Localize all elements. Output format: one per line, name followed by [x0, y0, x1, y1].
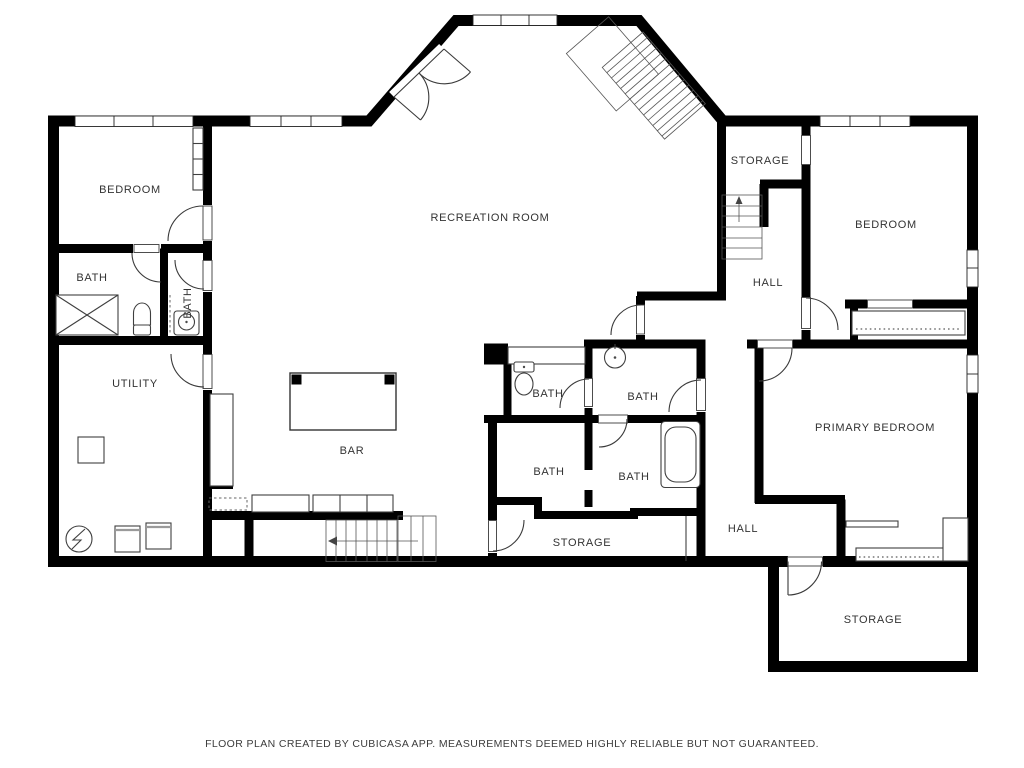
room-label-bedroom-tr: BEDROOM	[855, 219, 917, 231]
room-label-storage-top: STORAGE	[731, 155, 790, 167]
cabinets	[252, 495, 393, 512]
toilet	[134, 303, 151, 335]
closet	[943, 518, 968, 561]
room-label-hall-upper: HALL	[753, 277, 783, 289]
floor-plan-page: BEDROOM BATH BATH UTILITY RECREATION ROO…	[0, 0, 1024, 768]
room-label-bath-left2: BATH	[182, 287, 194, 318]
dashed-cabinet	[209, 498, 247, 510]
electrical-panel-icon	[66, 526, 92, 552]
window	[250, 116, 342, 127]
left-arrow-icon	[328, 537, 337, 546]
room-label-bath-c-tl: BATH	[532, 388, 563, 400]
door	[168, 206, 212, 241]
window	[967, 250, 978, 287]
wardrobe	[852, 311, 965, 335]
window	[967, 355, 978, 393]
room-label-recreation: RECREATION ROOM	[430, 212, 549, 224]
shelf	[846, 521, 898, 527]
door	[171, 354, 212, 389]
room-label-storage-center: STORAGE	[553, 537, 612, 549]
room-label-bath-left1: BATH	[76, 272, 107, 284]
room-label-bath-c-br: BATH	[618, 471, 649, 483]
room-label-primary-bedroom: PRIMARY BEDROOM	[815, 422, 935, 434]
water-heater	[78, 437, 104, 463]
cased-opening	[802, 136, 811, 165]
stair-cabinet	[398, 516, 436, 562]
door	[175, 260, 212, 291]
toilet	[514, 362, 534, 395]
door	[788, 557, 823, 595]
door	[489, 520, 525, 552]
door	[560, 379, 593, 409]
shelf	[193, 128, 203, 190]
door	[599, 415, 628, 447]
dryer	[146, 523, 171, 549]
washer	[115, 526, 140, 552]
door	[611, 305, 645, 335]
window	[473, 15, 557, 26]
door	[132, 245, 161, 283]
bar-table	[290, 373, 396, 430]
bathtub	[661, 422, 700, 488]
window	[75, 116, 193, 127]
bar-counter	[210, 394, 233, 486]
room-label-bath-c-bl: BATH	[533, 466, 564, 478]
door	[802, 298, 839, 331]
shower	[56, 295, 118, 335]
room-label-storage-br: STORAGE	[844, 614, 903, 626]
fireplace-chase	[484, 344, 508, 365]
up-arrow-icon	[736, 196, 743, 204]
door	[669, 379, 706, 413]
floor-plan-drawing: BEDROOM BATH BATH UTILITY RECREATION ROO…	[0, 0, 1024, 768]
wardrobe	[856, 548, 944, 561]
french-doors	[394, 49, 471, 120]
room-label-bedroom-tl: BEDROOM	[99, 184, 161, 196]
stairs-upper	[722, 195, 762, 259]
stairs-lower	[326, 516, 436, 562]
room-label-hall-lower: HALL	[728, 523, 758, 535]
window	[820, 116, 910, 127]
room-label-bar: BAR	[340, 445, 365, 457]
room-label-bath-c-tr: BATH	[627, 391, 658, 403]
cased-opening	[868, 300, 913, 308]
room-label-utility: UTILITY	[112, 378, 158, 390]
footer-disclaimer: FLOOR PLAN CREATED BY CUBICASA APP. MEAS…	[205, 738, 819, 750]
